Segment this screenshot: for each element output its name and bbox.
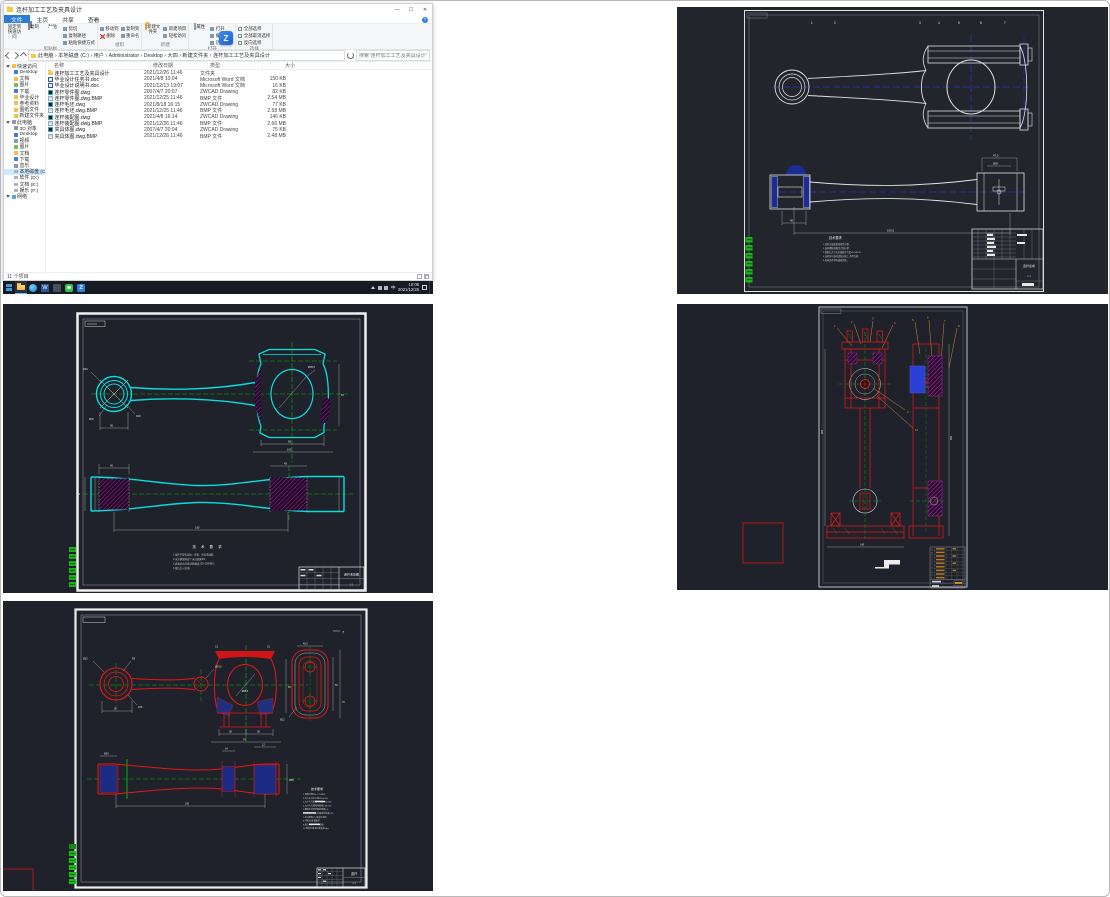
svg-text:Ø38: Ø38 (289, 779, 294, 782)
svg-text:4: 4 (894, 321, 896, 325)
svg-text:280: 280 (950, 435, 953, 440)
svg-text:190: 190 (185, 803, 190, 806)
up-icon[interactable] (20, 52, 27, 59)
title-block: 连杆毛坯图 1:1 (299, 567, 364, 590)
notification-icon[interactable] (422, 285, 427, 290)
show-desktop-button[interactable] (429, 281, 432, 294)
ribbon-group-new: 新建文件夹 新建项目 轻松访问 新建 (142, 24, 189, 49)
new-folder-button[interactable]: 新建文件夹 (144, 25, 161, 35)
svg-text:62: 62 (341, 393, 344, 397)
sidebar-network[interactable]: 网络 (4, 193, 45, 199)
svg-text:Ø24: Ø24 (104, 753, 109, 756)
column-date[interactable]: 修改日期 (151, 62, 208, 69)
tab-file[interactable]: 文件 (4, 15, 30, 23)
svg-text:Ø12: Ø12 (280, 719, 285, 722)
svg-text:1.连杆总成质量按规定分组;: 1.连杆总成质量按规定分组; (823, 242, 850, 246)
tray-expand-icon[interactable] (371, 286, 375, 289)
svg-text:3: 3 (919, 21, 921, 25)
layer-tags (69, 547, 76, 587)
file-row[interactable]: 夹具体图.dwg.BMP2021/12/26 11:46BMP 文件2.48 M… (46, 133, 432, 139)
cad-panel-part: 7 Ø65.5 (3, 601, 433, 891)
bmp-file-icon (48, 96, 53, 101)
edit-icon (210, 34, 214, 38)
new-item-icon (163, 27, 167, 31)
word-icon: W (41, 284, 49, 292)
svg-text:2: 2 (834, 21, 836, 25)
delete-button[interactable]: 删除 (100, 33, 119, 39)
svg-text:4: 4 (938, 21, 940, 25)
svg-text:24: 24 (225, 748, 228, 751)
corner-label: 7 (333, 630, 345, 635)
svg-text:190.5: 190.5 (887, 229, 894, 233)
side-view: 47.5 Ø39 40 190.5 (769, 154, 1029, 236)
details-view-icon[interactable] (417, 274, 422, 279)
red-selection-box (743, 523, 783, 563)
bmp-file-icon (48, 121, 53, 126)
technical-notes: 技 术 要 求 1.锻件不得有裂纹、折叠、夹层等缺陷; 2.未注模锻斜度7°,未… (173, 544, 224, 570)
copy-to-button[interactable]: 复制到 (121, 26, 140, 32)
drive-icon (14, 176, 18, 179)
item-count: 11 个项目 (7, 273, 29, 280)
chevron-down-icon (6, 121, 10, 124)
search-input[interactable] (357, 53, 429, 59)
delete-icon (100, 34, 105, 39)
svg-text:3.装配后大小头孔轴线平行度≤0.04/100;: 3.装配后大小头孔轴线平行度≤0.04/100; (823, 250, 862, 254)
svg-text:1.锻件不得有裂纹、折叠、夹层等缺陷;: 1.锻件不得有裂纹、折叠、夹层等缺陷; (173, 553, 214, 557)
svg-text:4.连杆体与连杆盖配对加工,不得互换;: 4.连杆体与连杆盖配对加工,不得互换; (823, 254, 859, 258)
svg-text:10.称重分组,组内质量差≤8g。: 10.称重分组,组内质量差≤8g。 (303, 826, 330, 830)
svg-text:3.表面喷丸处理,调质硬度229~269HBS;: 3.表面喷丸处理,调质硬度229~269HBS; (173, 562, 215, 566)
taskbar-zwcad[interactable]: Z (75, 281, 87, 294)
refresh-icon[interactable] (347, 52, 354, 59)
svg-text:38: 38 (114, 708, 117, 711)
select-none-button[interactable]: 全部取消选择 (238, 33, 270, 39)
rename-icon (121, 34, 125, 38)
new-folder-icon (145, 23, 147, 30)
navigation-pane: 快速访问 Desktop 文档 图片 下载 毕业设计 参考资料 图纸文件 新建文… (4, 62, 46, 272)
window-folder-icon (7, 7, 13, 12)
svg-text:7: 7 (342, 630, 345, 635)
front-view: 265 140 (821, 329, 904, 547)
search-box (356, 50, 430, 61)
location-folder-icon (31, 54, 36, 58)
invert-selection-icon (238, 41, 242, 45)
pictures-icon (14, 145, 18, 149)
svg-text:5: 5 (958, 21, 960, 25)
svg-text:1: 1 (811, 21, 813, 25)
section-profile-shape (875, 560, 900, 569)
main-view (773, 35, 1032, 140)
copy-to-icon (121, 27, 125, 31)
svg-text:技术要求: 技术要求 (829, 235, 843, 240)
bmp-file-icon (48, 108, 53, 113)
connecting-rod-blank-drawing: Ø65.5 R26 R18 Ø36 36 66 102 62 (3, 304, 433, 593)
thumbnails-view-icon[interactable] (424, 274, 429, 279)
properties-button[interactable]: 属性 (191, 25, 208, 30)
svg-text:2.大小头孔中心距190±0.05;: 2.大小头孔中心距190±0.05; (303, 796, 329, 800)
file-list: 名称 修改日期 类型 大小 连杆加工工艺及夹具设计2021/12/26 11:4… (46, 62, 432, 272)
drawing-scale: 1:1 (352, 881, 356, 885)
drawing-name: 连杆毛坯图 (344, 572, 359, 577)
open-icon (210, 27, 214, 31)
music-icon (14, 164, 18, 168)
svg-text:Ø14.5: Ø14.5 (215, 666, 222, 669)
windows-taskbar: W Z 中 10:082021/12/26 (3, 281, 433, 294)
svg-text:1.调质处理226~271HBS;: 1.调质处理226~271HBS; (303, 792, 326, 796)
svg-text:140: 140 (860, 544, 865, 547)
column-name[interactable]: 名称 (46, 62, 151, 69)
svg-text:Ø36: Ø36 (89, 418, 94, 421)
select-all-button[interactable]: 全部选择 (238, 26, 270, 32)
svg-text:5.各表面不得有磕碰划伤。: 5.各表面不得有磕碰划伤。 (823, 258, 849, 262)
3d-objects-icon (14, 126, 18, 130)
documents-icon (14, 77, 18, 81)
select-none-icon (238, 34, 242, 38)
drive-icon (14, 189, 18, 192)
desktop-icon (14, 70, 18, 74)
svg-text:R5: R5 (132, 658, 136, 661)
new-item-button[interactable]: 新建项目 (163, 26, 186, 32)
edge-icon (29, 284, 37, 292)
move-to-button[interactable]: 移动到 (100, 26, 119, 32)
svg-text:70: 70 (342, 701, 345, 704)
easy-access-button[interactable]: 轻松访问 (163, 33, 186, 39)
tab-share[interactable]: 共享 (55, 15, 81, 23)
screenshot-canvas: 连杆加工工艺及夹具设计 — ☐ ✕ 文件 主页 共享 查看 ? 固定到快速访问 … (0, 0, 1110, 897)
column-size[interactable]: 大小 (263, 62, 297, 69)
svg-text:Ø65.5: Ø65.5 (308, 366, 315, 369)
ribbon-group-select: 全部选择 全部取消选择 反向选择 选择 (236, 24, 273, 49)
taskbar-clock[interactable]: 10:082021/12/26 (398, 283, 419, 292)
network-icon[interactable] (378, 286, 382, 290)
word-file-icon (48, 77, 53, 82)
start-button[interactable] (3, 281, 15, 294)
bmp-file-icon (48, 134, 53, 139)
downloads-icon (14, 89, 18, 93)
ribbon-group-clipboard: 固定到快速访问 复制 粘贴 剪切 复制路径 粘贴快捷方式 剪贴板 (4, 24, 98, 49)
svg-text:38: 38 (257, 731, 260, 734)
copy-button[interactable]: 复制 (25, 25, 42, 30)
svg-text:R16: R16 (138, 706, 143, 709)
side-view: Ø24 24 12 190 Ø38 (87, 744, 301, 809)
svg-text:6: 6 (980, 21, 982, 25)
drawing-scale: 1:1 (350, 584, 354, 587)
side-view2: 280 (909, 344, 953, 538)
svg-text:36: 36 (110, 424, 113, 428)
svg-text:12: 12 (262, 744, 265, 747)
svg-text:47.5: 47.5 (993, 154, 999, 158)
svg-text:7: 7 (1004, 21, 1006, 25)
quick-access-icon (12, 64, 16, 68)
history-icon (210, 41, 214, 45)
folder-icon (14, 95, 18, 99)
big-end-flange (215, 651, 275, 659)
cut-button[interactable]: 剪切 (63, 26, 95, 32)
select-all-icon (238, 27, 242, 31)
svg-text:8: 8 (958, 324, 960, 328)
cad-panel-assembly: 1 2 3 4 5 6 7 (677, 7, 1108, 294)
volume-icon[interactable] (384, 286, 388, 290)
taskbar-word[interactable]: W (39, 281, 51, 294)
videos-icon (14, 139, 18, 143)
documents-icon (14, 151, 18, 155)
svg-text:45: 45 (284, 462, 287, 466)
copy-path-icon (63, 34, 67, 38)
column-type[interactable]: 类型 (208, 62, 263, 69)
drawing-scale: 1:1 (1027, 275, 1031, 278)
chevron-down-icon (6, 195, 10, 198)
fixture-assembly-drawing: 1 2 3 4 5 6 7 8 9 10 (677, 304, 1108, 590)
svg-text:7.未注倒角C1,锐边去毛刺;: 7.未注倒角C1,锐边去毛刺; (303, 815, 327, 819)
svg-text:5: 5 (912, 318, 914, 322)
help-icon[interactable]: ? (422, 17, 428, 23)
folder-icon (14, 108, 18, 112)
word-file-icon (48, 83, 53, 88)
folder-icon (48, 71, 53, 75)
svg-text:66: 66 (288, 440, 291, 444)
chevron-down-icon (6, 65, 10, 68)
maximize-button[interactable]: ☐ (404, 4, 418, 15)
svg-text:46.5: 46.5 (303, 643, 308, 646)
dimensions: 265 140 (821, 349, 904, 547)
dimensions: 47.5 Ø39 40 190.5 (782, 154, 1017, 236)
connecting-rod-assembly-drawing: 1 2 3 4 5 6 7 (677, 7, 1108, 294)
dwg-file-icon (48, 115, 53, 120)
svg-text:34: 34 (77, 492, 80, 496)
bom-table: 98 76 54 32 1 (930, 547, 965, 588)
status-bar: 11 个项目 (4, 272, 432, 280)
side-view: 40 45 190 34 (77, 462, 353, 533)
svg-text:5.螺栓孔对结合面垂直度0.1;: 5.螺栓孔对结合面垂直度0.1; (303, 807, 329, 811)
input-language[interactable]: 中 (391, 284, 396, 291)
this-pc-icon (12, 120, 16, 124)
svg-text:2.未注模锻斜度7°,未注圆角R3;: 2.未注模锻斜度7°,未注圆角R3; (173, 557, 206, 561)
drawing-frame (819, 307, 967, 587)
ribbon-tabs: 文件 主页 共享 查看 ? (4, 15, 432, 24)
forward-icon[interactable] (12, 52, 19, 59)
svg-text:10: 10 (915, 428, 919, 432)
file-explorer-window: 连杆加工工艺及夹具设计 — ☐ ✕ 文件 主页 共享 查看 ? 固定到快速访问 … (3, 3, 433, 281)
minimize-button[interactable]: — (390, 4, 404, 15)
drive-icon (14, 183, 18, 186)
svg-text:58: 58 (335, 684, 338, 687)
taskbar-app[interactable] (51, 281, 63, 294)
zwcad-app-icon[interactable]: Z (219, 31, 233, 45)
svg-text:95: 95 (288, 686, 291, 689)
windows-logo-icon (6, 284, 13, 291)
desktop-icon (14, 133, 18, 137)
svg-text:Ø65.5: Ø65.5 (242, 690, 249, 693)
tab-view[interactable]: 查看 (81, 15, 107, 23)
tab-home[interactable]: 主页 (30, 15, 56, 23)
drawing-frame (745, 11, 1044, 292)
red-frame-corner (3, 869, 33, 891)
svg-text:3: 3 (872, 317, 874, 321)
technical-notes: 技术要求 1.调质处理226~271HBS; 2.大小头孔中心距190±0.05… (303, 786, 334, 830)
svg-text:190: 190 (195, 526, 200, 530)
app-icon (53, 284, 61, 292)
folder-icon (14, 101, 18, 105)
taskbar-wechat[interactable] (63, 281, 75, 294)
svg-text:技 术 要 求: 技 术 要 求 (192, 544, 223, 549)
connecting-rod-part-drawing: 7 Ø65.5 (3, 601, 433, 891)
rename-button[interactable]: 重命名 (121, 33, 140, 39)
pin-quick-access-button[interactable]: 固定到快速访问 (6, 25, 23, 39)
title-block: 连杆 1:1 (317, 868, 365, 887)
svg-text:9: 9 (907, 410, 909, 414)
explorer-icon (17, 285, 25, 291)
svg-text:技术要求: 技术要求 (311, 786, 323, 791)
cap-end-view: 46.5 58 70 Ø12 (280, 643, 345, 722)
folder-icon (14, 114, 18, 118)
dwg-file-icon (48, 127, 53, 132)
svg-text:265: 265 (821, 429, 824, 434)
move-to-icon (100, 27, 104, 31)
svg-text:R18: R18 (136, 415, 141, 418)
main-view: Ø65.5 Ø25 R16 R5 Ø14.5 C1 C1 38 (83, 645, 308, 742)
svg-text:R26: R26 (83, 368, 88, 371)
downloads-icon (14, 157, 18, 161)
svg-text:2: 2 (851, 320, 853, 324)
network-icon (12, 195, 16, 199)
easy-access-icon (163, 34, 167, 38)
titlebar: 连杆加工工艺及夹具设计 — ☐ ✕ (4, 4, 432, 15)
address-bar: 此电脑 › 本地磁盘 (C:) › 用户 › Administrator › D… (4, 50, 432, 62)
title-block: 连杆总成 1:1 (972, 229, 1043, 289)
wechat-icon (65, 284, 73, 292)
technical-notes: 技术要求 1.连杆总成质量按规定分组; 2.连杆螺栓按规定力矩拧紧; 3.装配后… (823, 235, 862, 262)
svg-text:8.材料45钢,模锻件;: 8.材料45钢,模锻件; (303, 819, 321, 823)
ribbon: 固定到快速访问 复制 粘贴 剪切 复制路径 粘贴快捷方式 剪贴板 移动到 删除 (4, 24, 432, 50)
svg-text:38: 38 (229, 731, 232, 734)
zwcad-icon: Z (77, 284, 85, 292)
pictures-icon (14, 83, 18, 87)
cad-panel-fixture: 1 2 3 4 5 6 7 8 9 10 (677, 304, 1108, 590)
zone-numbers: 1 2 3 4 5 6 7 (811, 21, 1006, 25)
cut-icon (63, 27, 67, 31)
svg-text:7: 7 (944, 319, 946, 323)
paste-shortcut-icon (63, 41, 67, 45)
top-view: Ø65.5 R26 R18 Ø36 36 66 102 62 (83, 342, 349, 462)
paste-button[interactable]: 粘贴 (44, 25, 61, 30)
window-title: 连杆加工工艺及夹具设计 (16, 5, 82, 14)
ribbon-group-organize: 移动到 删除 复制到 重命名 组织 (98, 24, 142, 49)
svg-text:1: 1 (834, 324, 836, 328)
svg-text:4.大小头孔轴线扭曲度0.06/100;: 4.大小头孔轴线扭曲度0.06/100; (303, 803, 332, 807)
dwg-file-icon (48, 102, 53, 107)
svg-text:C1: C1 (267, 646, 271, 649)
svg-text:6: 6 (927, 316, 929, 320)
drawing-name: 连杆 (351, 871, 358, 876)
copy-path-button[interactable]: 复制路径 (63, 33, 95, 39)
close-button[interactable]: ✕ (418, 4, 432, 15)
svg-text:40: 40 (790, 219, 794, 223)
svg-text:Ø39: Ø39 (993, 162, 998, 166)
taskbar-file-explorer[interactable] (15, 281, 27, 294)
svg-text:C1: C1 (215, 646, 219, 649)
svg-text:Ø25: Ø25 (83, 658, 88, 661)
svg-text:4.锻后正火处理。: 4.锻后正火处理。 (173, 566, 192, 570)
taskbar-edge[interactable] (27, 281, 39, 294)
drive-icon (14, 170, 18, 173)
cad-panel-blank: Ø65.5 R26 R18 Ø36 36 66 102 62 (3, 304, 433, 593)
svg-text:102: 102 (287, 448, 292, 452)
svg-text:40: 40 (110, 464, 113, 468)
drawing-name: 连杆总成 (1023, 263, 1035, 268)
breadcrumb[interactable]: 此电脑 › 本地磁盘 (C:) › 用户 › Administrator › D… (28, 50, 345, 61)
svg-text:2.连杆螺栓按规定力矩拧紧;: 2.连杆螺栓按规定力矩拧紧; (823, 246, 850, 250)
dwg-file-icon (48, 90, 53, 95)
